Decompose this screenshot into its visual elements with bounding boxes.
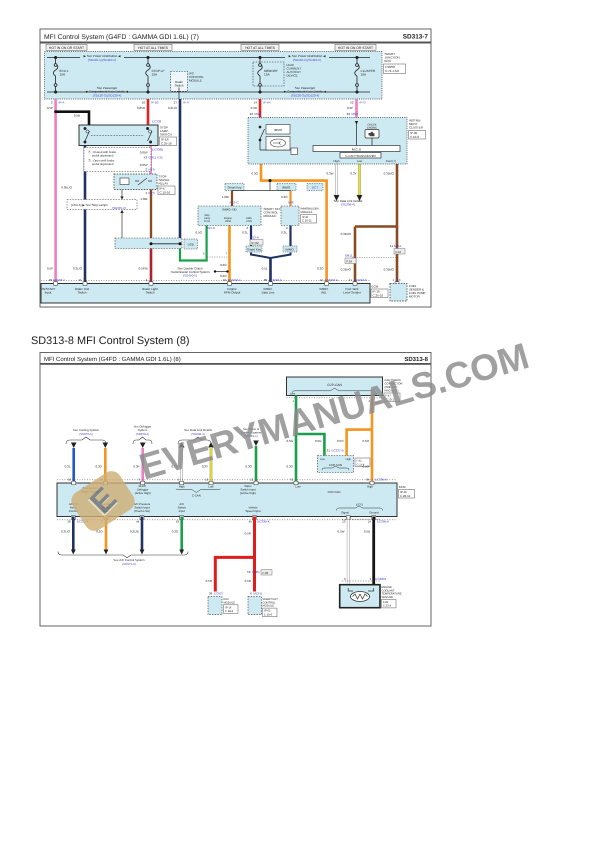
svg-text:F.33: F.33 — [263, 571, 269, 575]
svg-text:10: 10 — [142, 101, 146, 105]
svg-text:15A: 15A — [152, 73, 158, 77]
svg-text:HOT AT ALL TIMES: HOT AT ALL TIMES — [138, 46, 169, 50]
svg-text:0.3O: 0.3O — [220, 274, 227, 278]
svg-text:F18: F18 — [396, 278, 401, 282]
svg-text:22: 22 — [250, 478, 254, 482]
svg-text:(SD110-4),(SD110-5): (SD110-4),(SD110-5) — [293, 58, 321, 62]
svg-text:F.34: F.34 — [396, 250, 402, 254]
svg-text:24: 24 — [368, 520, 372, 524]
svg-text:23: 23 — [342, 520, 346, 524]
svg-text:M.C.U: M.C.U — [352, 147, 362, 151]
svg-text:MODULE: MODULE — [263, 605, 275, 608]
svg-text:CON: CON — [246, 220, 252, 223]
svg-text:MFI Control System (G4FD : GAM: MFI Control System (G4FD : GAMMA GDI 1.6… — [44, 34, 199, 41]
svg-text:10A: 10A — [60, 73, 66, 77]
svg-text:A: A — [146, 278, 148, 282]
svg-text:EM11 F.35: EM11 F.35 — [149, 156, 163, 160]
svg-text:62: 62 — [290, 478, 294, 482]
svg-text:Input: Input — [179, 509, 185, 513]
svg-text:HOT AT ALL TIMES: HOT AT ALL TIMES — [245, 46, 276, 50]
svg-text:19: 19 — [205, 478, 209, 482]
svg-text:0.3P: 0.3P — [347, 106, 353, 110]
svg-text:(SD120-3),(SD120-4): (SD120-3),(SD120-4) — [291, 93, 320, 97]
svg-text:EC75: EC75 — [356, 503, 363, 507]
svg-text:MFI Control System (G4FD : GAM: MFI Control System (G4FD : GAMMA GDI 1.6… — [44, 356, 181, 363]
svg-text:(SD970-1): (SD970-1) — [79, 432, 92, 436]
svg-text:0.3L/O: 0.3L/O — [73, 267, 83, 271]
svg-text:(LED A) ▶ See Stop Lamps: (LED A) ▶ See Stop Lamps — [71, 203, 108, 207]
svg-text:MF11: MF11 — [394, 244, 402, 248]
svg-text:Low: Low — [320, 458, 325, 461]
svg-text:0.3L/O: 0.3L/O — [168, 106, 178, 110]
svg-text:45: 45 — [249, 520, 253, 524]
svg-text:pedal depressed: pedal depressed — [92, 162, 114, 166]
svg-text:USB: USB — [188, 243, 194, 247]
svg-text:0.3L: 0.3L — [65, 465, 71, 469]
svg-text:20: 20 — [49, 278, 53, 282]
svg-text:84: 84 — [366, 478, 370, 482]
svg-text:0.3G: 0.3G — [172, 530, 179, 534]
svg-text:80: 80 — [264, 278, 268, 282]
svg-text:Speed Input: Speed Input — [245, 509, 260, 513]
svg-text:0.5L: 0.5L — [262, 267, 268, 271]
svg-text:CCP-CAN: CCP-CAN — [328, 490, 341, 494]
svg-text:0.5R: 0.5R — [245, 532, 252, 536]
svg-text:BOX: BOX — [385, 59, 391, 63]
svg-text:43: 43 — [144, 156, 148, 160]
svg-text:12: 12 — [320, 278, 324, 282]
svg-text:ECG3M-A: ECG3M-A — [228, 278, 241, 282]
svg-text:RPM: RPM — [225, 220, 231, 223]
svg-text:C.72-1,6,8: C.72-1,6,8 — [385, 69, 399, 73]
svg-text:Level Sender: Level Sender — [343, 291, 361, 295]
svg-text:C.10-6: C.10-6 — [410, 135, 419, 139]
svg-text:RPM Output: RPM Output — [224, 291, 241, 295]
svg-text:(Active High): (Active High) — [135, 491, 151, 495]
svg-text:0.3O: 0.3O — [220, 263, 227, 267]
svg-text:C.19-6: C.19-6 — [264, 613, 273, 616]
svg-text:HOT IN ON OR START: HOT IN ON OR START — [338, 46, 373, 50]
svg-text:0.3G: 0.3G — [245, 465, 252, 469]
svg-text:ECG36-4: ECG36-4 — [53, 278, 65, 282]
svg-text:0.3G: 0.3G — [286, 465, 293, 469]
svg-text:MG8: MG8 — [255, 112, 262, 116]
svg-text:MF9: MF9 — [149, 168, 155, 172]
svg-text:1.0Br: 1.0Br — [140, 197, 147, 201]
svg-text:EC6801: EC6801 — [376, 577, 387, 581]
svg-text:0.05L/O: 0.05L/O — [61, 186, 72, 190]
svg-text:ENGINE: ENGINE — [367, 127, 377, 130]
svg-text:pedal depressed: pedal depressed — [92, 154, 114, 158]
svg-text:SWITCH: SWITCH — [160, 133, 172, 137]
svg-text:SENSOR: SENSOR — [382, 596, 393, 599]
svg-text:C.33-4: C.33-4 — [383, 605, 392, 608]
svg-text:Switch: Switch — [78, 291, 87, 295]
svg-text:28: 28 — [67, 520, 71, 524]
svg-text:0.3Br/O: 0.3Br/O — [384, 268, 395, 272]
svg-text:MOTOR: MOTOR — [409, 295, 420, 299]
svg-text:DEVICE: DEVICE — [287, 74, 298, 78]
svg-text:0.5W: 0.5W — [337, 530, 344, 534]
svg-text:EC337-B: EC337-B — [332, 449, 344, 453]
svg-text:0.5O: 0.5O — [362, 465, 369, 469]
svg-text:C-CAN: C-CAN — [192, 494, 201, 498]
svg-text:43: 43 — [176, 520, 180, 524]
svg-text:0.5O: 0.5O — [362, 439, 369, 443]
svg-text:C.10-11: C.10-11 — [302, 219, 312, 223]
svg-text:0.3Br/O: 0.3Br/O — [341, 232, 352, 236]
svg-text:N08: N08 — [288, 201, 294, 205]
svg-text:(SD110-4),(SD110-5): (SD110-4),(SD110-5) — [88, 58, 116, 62]
svg-text:IND.: IND. — [321, 291, 327, 295]
svg-text:CLUSTER: CLUSTER — [409, 126, 424, 130]
svg-text:F.34: F.34 — [347, 259, 353, 263]
svg-text:Signal: Signal — [341, 511, 349, 515]
svg-text:Ground: Ground — [369, 511, 379, 515]
svg-text:0.5R: 0.5R — [206, 579, 213, 583]
svg-text:1.0Br: 1.0Br — [222, 195, 229, 199]
svg-text:SD313-8 MFI Control System (8): SD313-8 MFI Control System (8) — [31, 335, 190, 347]
svg-text:C.28-12: C.28-12 — [400, 494, 411, 498]
svg-text:IP-62: IP-62 — [252, 241, 260, 245]
svg-text:IP-B2: IP-B2 — [151, 101, 159, 105]
svg-text:ECM: ECM — [399, 485, 406, 489]
svg-text:IMMO.: IMMO. — [286, 247, 295, 251]
svg-text:C.25-10: C.25-10 — [373, 293, 384, 297]
svg-text:0.3O: 0.3O — [281, 195, 288, 199]
svg-text:High: High — [334, 159, 340, 163]
svg-text:31: 31 — [327, 449, 331, 453]
svg-text:0.5P: 0.5P — [47, 267, 53, 271]
svg-text:0.5B: 0.5B — [74, 114, 80, 118]
svg-text:0.3W: 0.3W — [326, 172, 333, 176]
svg-text:ECG3M-K: ECG3M-K — [269, 278, 282, 282]
svg-text:Smart Key: Smart Key — [227, 186, 242, 190]
svg-text:22: 22 — [250, 112, 254, 116]
svg-text:MODULE: MODULE — [224, 601, 236, 604]
svg-text:High: High — [367, 485, 373, 489]
svg-text:M13-C: M13-C — [230, 201, 240, 205]
svg-text:Low: Low — [357, 159, 363, 163]
svg-text:EC338: EC338 — [152, 120, 162, 124]
svg-text:0.3P: 0.3P — [133, 465, 139, 469]
svg-text:DCT: DCT — [312, 186, 318, 190]
svg-text:EM61: EM61 — [252, 570, 260, 574]
svg-text:0.3O: 0.3O — [95, 465, 102, 469]
svg-text:10A: 10A — [361, 73, 367, 77]
svg-text:0.3Br/O: 0.3Br/O — [384, 172, 395, 176]
svg-text:ECG3M-A: ECG3M-A — [325, 278, 338, 282]
svg-text:0.3O: 0.3O — [317, 267, 324, 271]
svg-text:Front: Front — [204, 220, 210, 223]
svg-text:0.5R: 0.5R — [245, 579, 252, 583]
svg-text:0.5P/B: 0.5P/B — [139, 267, 148, 271]
svg-text:HOT IN ON OR START: HOT IN ON OR START — [49, 46, 84, 50]
svg-text:RELAY: RELAY — [159, 182, 169, 186]
svg-text:C.28-8: C.28-8 — [225, 610, 234, 613]
svg-text:59: 59 — [68, 478, 72, 482]
svg-text:15A: 15A — [264, 73, 270, 77]
svg-text:Fuel (+): Fuel (+) — [386, 159, 396, 163]
svg-text:ECG3M-K: ECG3M-K — [354, 278, 367, 282]
svg-text:Data Line: Data Line — [262, 291, 275, 295]
svg-text:0.5B: 0.5B — [364, 530, 370, 534]
svg-text:27: 27 — [174, 101, 178, 105]
svg-text:0.3R: 0.3R — [251, 106, 258, 110]
svg-text:IMMO.: IMMO. — [282, 186, 291, 190]
svg-text:0.3L/O: 0.3L/O — [61, 530, 71, 534]
svg-text:0.85P: 0.85P — [140, 151, 148, 155]
svg-text:MG8: MG8 — [352, 112, 359, 116]
svg-text:0.3L/B: 0.3L/B — [130, 530, 139, 534]
svg-text:0.3Y: 0.3Y — [350, 172, 356, 176]
svg-text:0.85R: 0.85R — [137, 106, 146, 110]
svg-text:IP-G: IP-G — [360, 101, 367, 105]
svg-text:EC336B: EC336B — [152, 148, 163, 152]
svg-text:ECM: ECM — [372, 285, 379, 289]
svg-text:C-CAN TRANSCEIVER: C-CAN TRANSCEIVER — [345, 154, 375, 158]
svg-text:Switch: Switch — [175, 84, 184, 88]
svg-text:MODULE: MODULE — [301, 210, 313, 214]
svg-text:Smart Key: Smart Key — [247, 247, 262, 251]
svg-text:SD313-8: SD313-8 — [404, 356, 428, 363]
svg-text:EC33M-K: EC33M-K — [258, 520, 270, 524]
svg-text:High: High — [179, 485, 185, 489]
svg-text:0.5O: 0.5O — [337, 439, 344, 443]
svg-text:CCP-CAN: CCP-CAN — [327, 383, 342, 387]
svg-text:14: 14 — [254, 101, 258, 105]
svg-text:26: 26 — [209, 592, 213, 596]
svg-text:17: 17 — [349, 278, 353, 282]
svg-text:(SD450-5): (SD450-5) — [183, 274, 197, 278]
svg-text:Switch: Switch — [146, 291, 155, 295]
svg-text:SD313-7: SD313-7 — [403, 34, 429, 41]
svg-text:0.3L: 0.3L — [281, 231, 287, 235]
svg-text:11: 11 — [79, 278, 82, 282]
svg-text:(SD907-2): (SD907-2) — [112, 206, 126, 210]
svg-text:(Active High): (Active High) — [240, 491, 256, 495]
svg-text:F.28: F.28 — [383, 601, 389, 604]
svg-text:(Thermo Sw): (Thermo Sw) — [134, 509, 150, 513]
svg-text:(SD971-3): (SD971-3) — [122, 562, 135, 566]
svg-text:IMMO.-ND: IMMO.-ND — [222, 208, 237, 212]
svg-text:IP-62: IP-62 — [264, 610, 271, 613]
svg-text:M13-A: M13-A — [250, 236, 259, 240]
svg-text:IP-A4: IP-A4 — [263, 101, 271, 105]
svg-text:0.3Br/O: 0.3Br/O — [341, 268, 352, 272]
svg-text:52: 52 — [350, 101, 354, 105]
svg-text:C.25-16: C.25-16 — [161, 141, 172, 145]
svg-text:Input: Input — [45, 291, 52, 295]
svg-text:MF9: MF9 — [149, 191, 155, 195]
svg-text:0.5P: 0.5P — [47, 106, 53, 110]
svg-text:18: 18 — [223, 278, 227, 282]
svg-text:56: 56 — [247, 570, 251, 574]
svg-text:IP-16: IP-16 — [225, 606, 232, 609]
svg-text:MODULE: MODULE — [264, 214, 277, 218]
svg-text:MODULE: MODULE — [189, 79, 202, 83]
svg-text:(SD120-3),(SD120-4): (SD120-3),(SD120-4) — [93, 93, 122, 97]
svg-text:44: 44 — [136, 520, 140, 524]
svg-text:EM11: EM11 — [345, 254, 353, 258]
svg-text:0.3L: 0.3L — [242, 231, 248, 235]
svg-text:High: High — [346, 458, 352, 461]
svg-text:0.3O: 0.3O — [251, 172, 258, 176]
svg-text:22: 22 — [347, 112, 351, 116]
svg-text:M13-B: M13-B — [253, 592, 262, 596]
svg-text:0.5G: 0.5G — [195, 231, 202, 235]
svg-text:(SD878-1): (SD878-1) — [136, 432, 149, 436]
svg-text:11: 11 — [390, 244, 393, 248]
svg-text:EC627: EC627 — [214, 592, 224, 596]
svg-text:F.42: F.42 — [357, 460, 362, 463]
svg-text:IMMO: IMMO — [274, 128, 283, 132]
svg-text:0.85P: 0.85P — [140, 163, 148, 167]
svg-text:EC33M-A: EC33M-A — [377, 520, 389, 524]
svg-text:0.5G: 0.5G — [315, 439, 322, 443]
svg-text:(SD208-4): (SD208-4) — [341, 203, 355, 207]
svg-text:IP-A: IP-A — [59, 101, 65, 105]
svg-text:M13-B: M13-B — [206, 226, 215, 230]
svg-text:IP-A: IP-A — [183, 101, 189, 105]
svg-text:C.10-16: C.10-16 — [160, 190, 171, 194]
svg-text:EC33M-K: EC33M-K — [375, 478, 387, 482]
